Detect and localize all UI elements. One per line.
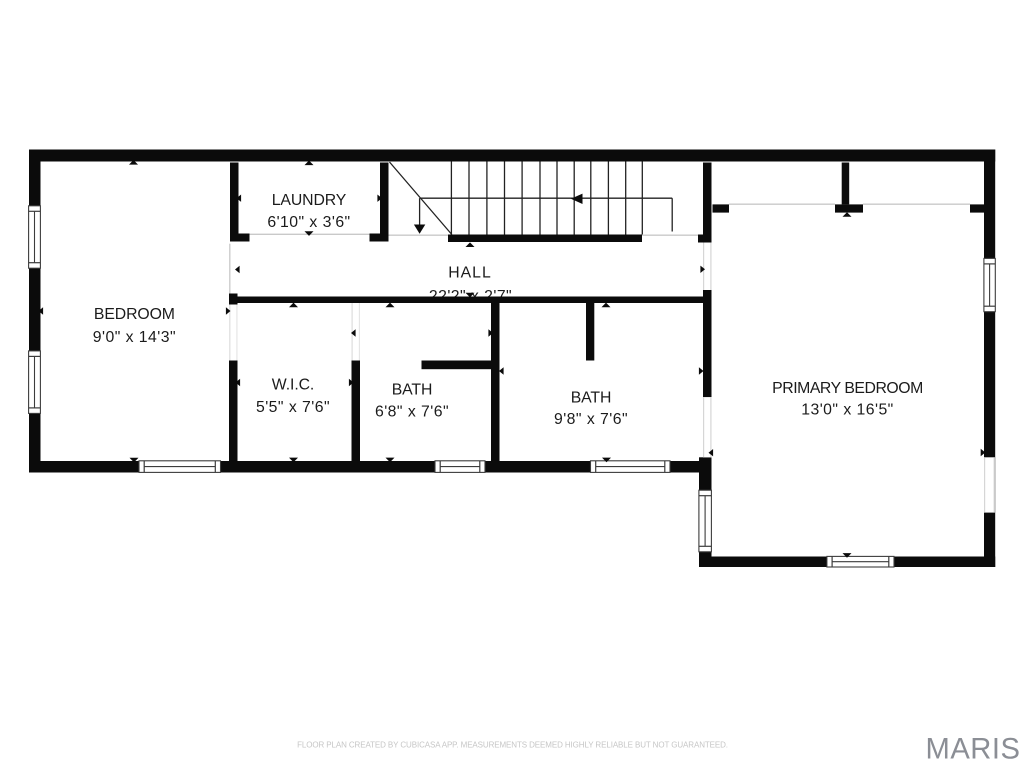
svg-text:FLOOR PLAN CREATED BY CUBICASA: FLOOR PLAN CREATED BY CUBICASA APP. MEAS…: [297, 741, 728, 750]
svg-text:W.I.C.: W.I.C.: [272, 376, 314, 393]
svg-text:BEDROOM: BEDROOM: [94, 306, 175, 323]
svg-text:BATH: BATH: [571, 390, 612, 407]
svg-text:PRIMARY BEDROOM: PRIMARY BEDROOM: [772, 380, 923, 397]
svg-text:LAUNDRY: LAUNDRY: [272, 192, 347, 209]
svg-text:MARIS: MARIS: [926, 734, 1021, 766]
svg-text:6'8" x 7'6": 6'8" x 7'6": [375, 404, 449, 421]
svg-text:6'10" x 3'6": 6'10" x 3'6": [267, 214, 350, 231]
svg-text:13'0" x 16'5": 13'0" x 16'5": [801, 402, 894, 419]
svg-text:9'0" x 14'3": 9'0" x 14'3": [93, 329, 176, 346]
svg-text:HALL: HALL: [448, 265, 492, 282]
svg-text:BATH: BATH: [392, 382, 433, 399]
svg-text:5'5" x 7'6": 5'5" x 7'6": [256, 399, 330, 416]
svg-text:9'8" x 7'6": 9'8" x 7'6": [554, 411, 628, 428]
